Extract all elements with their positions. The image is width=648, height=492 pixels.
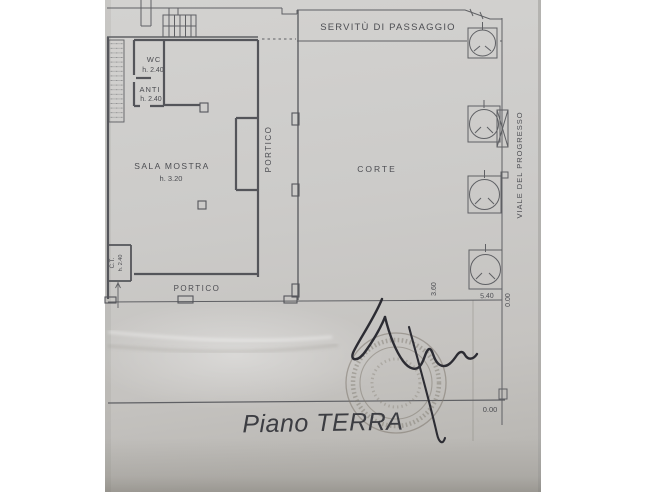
title-block: Piano TERRA <box>242 408 404 439</box>
floor-plan-canvas: SERVITÙ DI PASSAGGIO WC h. 2.40 ANTI h. … <box>0 0 648 492</box>
dim-west-offset: 3.60 <box>431 282 438 296</box>
servitu-label: SERVITÙ DI PASSAGGIO <box>320 22 456 33</box>
ct-room-height: h. 2.40 <box>118 255 124 272</box>
dim-south-offset: 5.40 <box>480 293 494 300</box>
corte-label: CORTE <box>357 164 397 174</box>
portico-bottom-label: PORTICO <box>174 284 221 293</box>
anti-room-label: ANTI <box>139 85 160 94</box>
hatched-area <box>109 40 124 122</box>
sala-mostra-height: h. 3.20 <box>160 174 183 183</box>
dim-corner-level: 0.00 <box>505 293 512 307</box>
photographed-floor-plan: SERVITÙ DI PASSAGGIO WC h. 2.40 ANTI h. … <box>0 0 648 492</box>
dim-ground-level: 0.00 <box>483 405 498 414</box>
sala-mostra-label: SALA MOSTRA <box>134 161 209 171</box>
plan-title: Piano TERRA <box>242 408 404 439</box>
wc-room-label: WC <box>147 55 162 64</box>
anti-room-height: h. 2.40 <box>140 96 162 103</box>
wc-room-height: h. 2.40 <box>142 67 164 74</box>
portico-side-label: PORTICO <box>264 126 273 173</box>
ct-room-label: C.T. <box>110 257 116 268</box>
viale-label: VIALE DEL PROGRESSO <box>515 111 524 218</box>
